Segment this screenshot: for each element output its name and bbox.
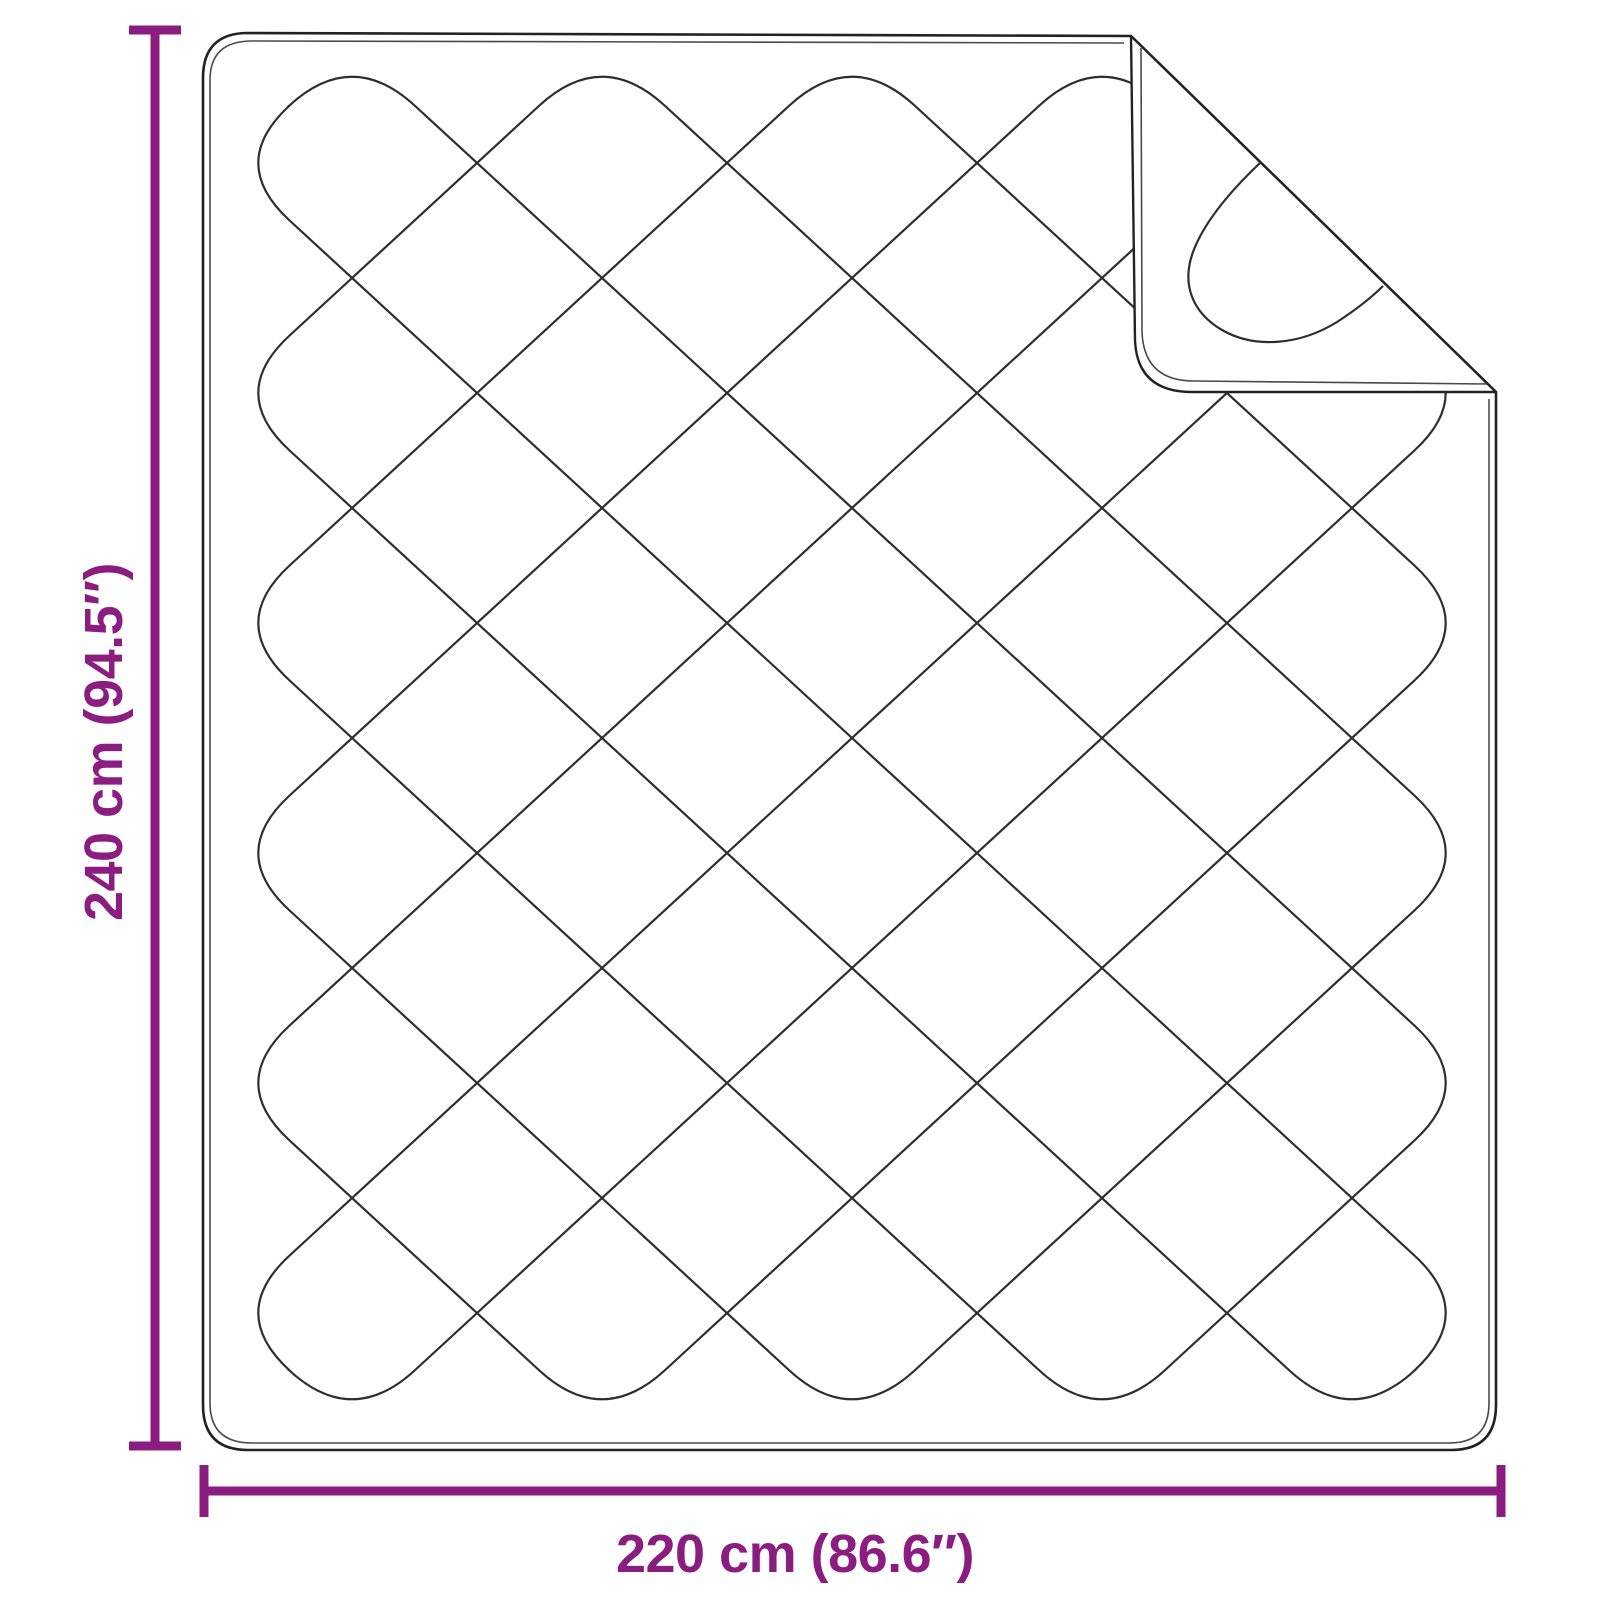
height-dimension: 240 cm (94.5″) bbox=[74, 30, 181, 1446]
product-dimension-diagram: 240 cm (94.5″) 220 cm (86.6″) bbox=[0, 0, 1600, 1600]
height-dimension-label: 240 cm (94.5″) bbox=[74, 563, 134, 921]
fold-flap bbox=[1131, 36, 1496, 392]
diagram-canvas: 240 cm (94.5″) 220 cm (86.6″) bbox=[0, 0, 1600, 1600]
width-dimension-label: 220 cm (86.6″) bbox=[616, 1524, 974, 1584]
width-dimension: 220 cm (86.6″) bbox=[204, 1465, 1501, 1584]
blanket-illustration bbox=[203, 33, 1496, 1450]
